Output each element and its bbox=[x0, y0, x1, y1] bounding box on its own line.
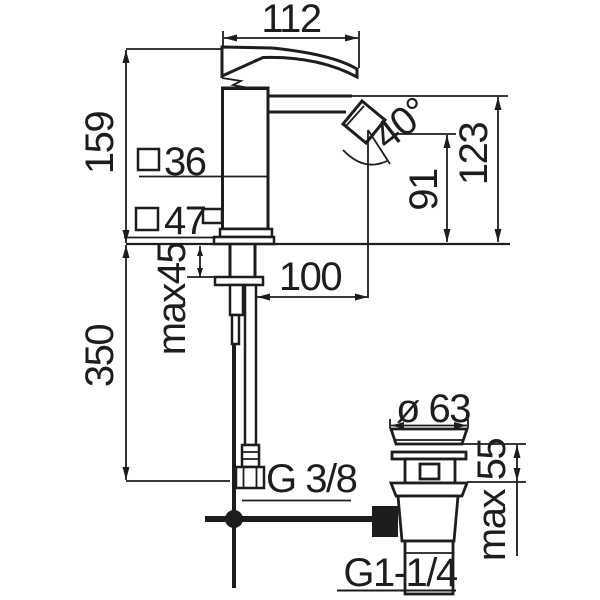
dim-max45: max45 bbox=[150, 242, 216, 355]
callout-square-47: 47 bbox=[124, 199, 216, 243]
callout-g114: G1-1/4 bbox=[337, 551, 458, 595]
dim-arrow-bottom bbox=[123, 467, 130, 480]
technical-drawing-page: 40° 112 159 350 36 47 bbox=[0, 0, 600, 600]
dim-arrow-bottom bbox=[197, 268, 203, 277]
g38-label: G 3/8 bbox=[266, 457, 357, 501]
angle-label: 40° bbox=[365, 89, 436, 158]
dim-91: 91 bbox=[394, 134, 456, 242]
dim-123-label: 123 bbox=[452, 123, 496, 185]
dim-91-label: 91 bbox=[402, 169, 446, 211]
dim-arrow-top bbox=[123, 50, 130, 63]
dim-arrow-bottom bbox=[495, 229, 502, 242]
dim-arrow-top bbox=[197, 247, 203, 256]
square-symbol-icon bbox=[138, 149, 159, 170]
technical-drawing-canvas: 40° 112 159 350 36 47 bbox=[0, 0, 600, 600]
dim-arrow-left bbox=[224, 35, 237, 42]
hose-hex-nut bbox=[236, 467, 264, 488]
dim-100-label: 100 bbox=[279, 255, 341, 299]
faucet-outline bbox=[203, 47, 385, 244]
g114-label: G1-1/4 bbox=[343, 551, 458, 595]
waste-lower-flange bbox=[391, 483, 467, 496]
dim-arrow-top bbox=[514, 445, 521, 458]
square-symbol-icon bbox=[136, 208, 158, 230]
dim-arrow-bottom bbox=[123, 230, 130, 243]
dim-350-label: 350 bbox=[78, 325, 122, 387]
square-47-label: 47 bbox=[164, 199, 206, 243]
body-side-tab bbox=[203, 209, 222, 223]
dim-arrow-right bbox=[355, 294, 368, 301]
waste-body bbox=[398, 496, 458, 541]
waste-overflow-slot bbox=[420, 464, 439, 479]
dim-d63: ø 63 bbox=[390, 387, 470, 431]
dim-arrow-bottom bbox=[514, 468, 521, 481]
waste-plug-cap bbox=[391, 429, 467, 444]
rod-clamp-block bbox=[372, 506, 398, 537]
dim-max55-label: max 55 bbox=[470, 439, 514, 561]
dim-arrow-top bbox=[123, 245, 130, 258]
hose-end-connector bbox=[242, 445, 259, 467]
rod-pivot-ball bbox=[225, 510, 243, 528]
rod-guide-tube bbox=[230, 285, 243, 315]
dim-159-label: 159 bbox=[78, 112, 122, 174]
faucet-handle-lever bbox=[222, 47, 357, 77]
rod-guide-lower bbox=[232, 315, 239, 344]
dim-arrow-top bbox=[444, 135, 451, 148]
dim-100: 100 bbox=[257, 255, 368, 301]
dim-max45-label: max45 bbox=[150, 242, 194, 355]
flexible-hose bbox=[245, 285, 256, 445]
dim-arrow-right bbox=[345, 35, 358, 42]
dim-arrow-bottom bbox=[444, 229, 451, 242]
dim-arrow-left bbox=[257, 294, 270, 301]
faucet-body bbox=[223, 88, 269, 229]
angle-arc bbox=[343, 150, 387, 165]
dim-112-label: 112 bbox=[261, 0, 321, 41]
dim-arrow-top bbox=[495, 97, 502, 110]
dim-max55: max 55 bbox=[462, 439, 526, 561]
